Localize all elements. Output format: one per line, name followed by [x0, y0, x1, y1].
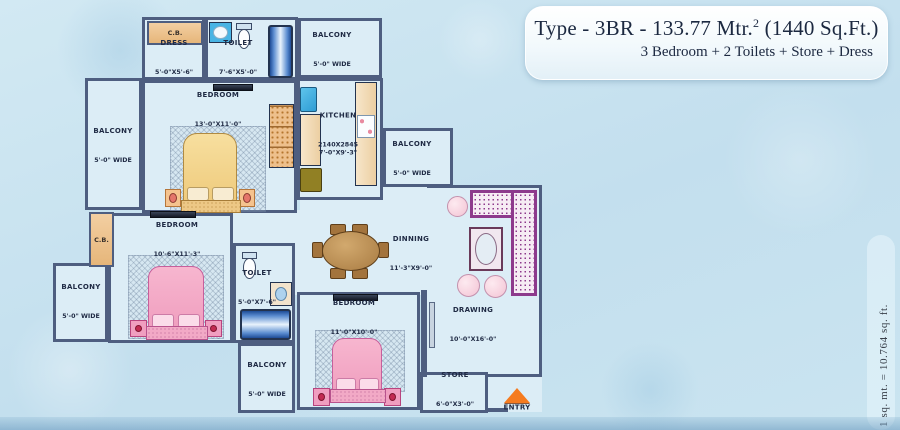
label-kitchen: KITCHEN 2140X2845 7'-0"X9'-3" — [318, 91, 358, 176]
label-dress: DRESS 5'-0"X5'-6" — [155, 19, 193, 97]
floor-plan-page: C.B. C.B. — [0, 0, 900, 430]
label-balcony-left-top: BALCONY 5'-0" WIDE — [93, 107, 132, 185]
bedroom2-bedpost — [130, 320, 147, 337]
bedroom3-bedpost — [313, 388, 330, 406]
bedroom3-bedpost — [384, 388, 401, 406]
bedroom1-pillow — [212, 187, 234, 201]
pouf — [447, 196, 468, 217]
center-table — [469, 227, 503, 271]
label-toilet-mid: TOILET 5'-0"X7'-6" — [238, 249, 276, 327]
bedroom2-headboard — [146, 326, 208, 340]
bedroom1-wardrobe — [269, 104, 294, 168]
label-bedroom-2: BEDROOM 10'-6"X11'-3" — [154, 201, 201, 279]
plan-title-box: Type - 3BR - 133.77 Mtr.2 (1440 Sq.Ft.) … — [525, 6, 888, 80]
bedroom1-nightstand — [239, 189, 255, 207]
shower-panel — [268, 25, 293, 78]
kitchen-sink — [357, 115, 375, 138]
kitchen-passage-floor — [300, 198, 383, 213]
label-balcony-bottom: BALCONY 5'-0" WIDE — [247, 341, 286, 419]
label-bedroom-3: BEDROOM 11'-0"X10'-0" — [331, 279, 378, 357]
label-store: STORE 6'-0"X3'-0" — [436, 351, 474, 429]
plan-subtitle: 3 Bedroom + 2 Toilets + Store + Dress — [526, 44, 887, 61]
label-balcony-top: BALCONY 5'-0" WIDE — [312, 11, 351, 89]
dining-table — [322, 231, 380, 271]
label-balcony-right: BALCONY 5'-0" WIDE — [392, 120, 431, 198]
drawing-left-wall — [421, 290, 427, 377]
cupboard-bedroom-2: C.B. — [89, 212, 114, 267]
entry-label: ENTRY — [504, 384, 531, 430]
conversion-note: 1 sq. mt. = 10.764 sq. ft. — [878, 304, 890, 427]
plan-title: Type - 3BR - 133.77 Mtr.2 (1440 Sq.Ft.) — [526, 16, 887, 41]
label-dinning: DINNING 11'-3"X9'-0" — [390, 215, 432, 293]
drawing-door-leaf — [429, 302, 435, 348]
bedroom1-pillow — [187, 187, 209, 201]
refrigerator — [300, 87, 317, 112]
cupboard-label: C.B. — [94, 236, 109, 244]
sofa-vertical — [511, 190, 537, 296]
label-balcony-left-bottom: BALCONY 5'-0" WIDE — [61, 263, 100, 341]
label-bedroom-1: BEDROOM 13'-0"X11'-0" — [195, 71, 242, 149]
bedroom3-headboard — [330, 389, 386, 403]
